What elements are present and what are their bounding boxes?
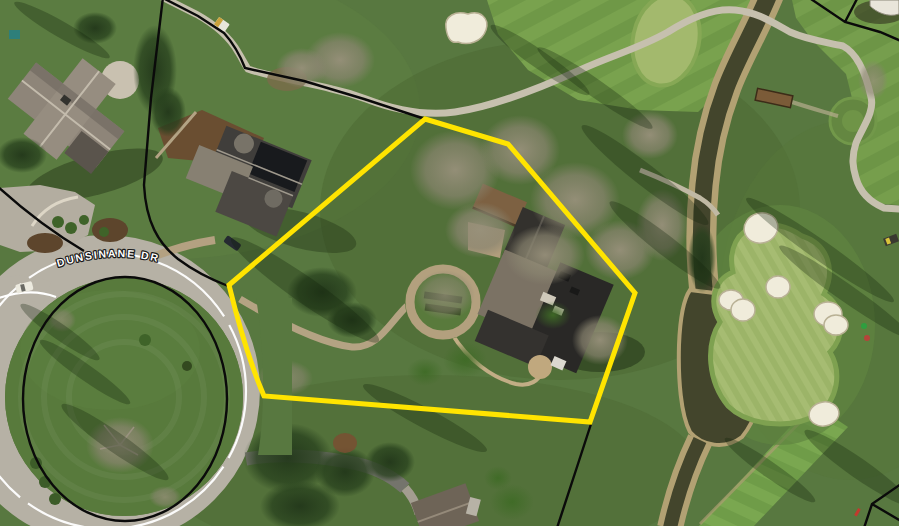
sand-bunker xyxy=(731,299,755,321)
golfer xyxy=(861,323,867,329)
sand-bunker xyxy=(824,315,848,335)
golfer xyxy=(864,335,870,341)
sand-bunker xyxy=(766,276,790,298)
trampoline xyxy=(9,30,20,39)
rear-terrace xyxy=(528,355,552,379)
aerial-map-canvas[interactable]: DUNSINANE DR xyxy=(0,0,899,526)
sand-bunker xyxy=(446,13,487,44)
